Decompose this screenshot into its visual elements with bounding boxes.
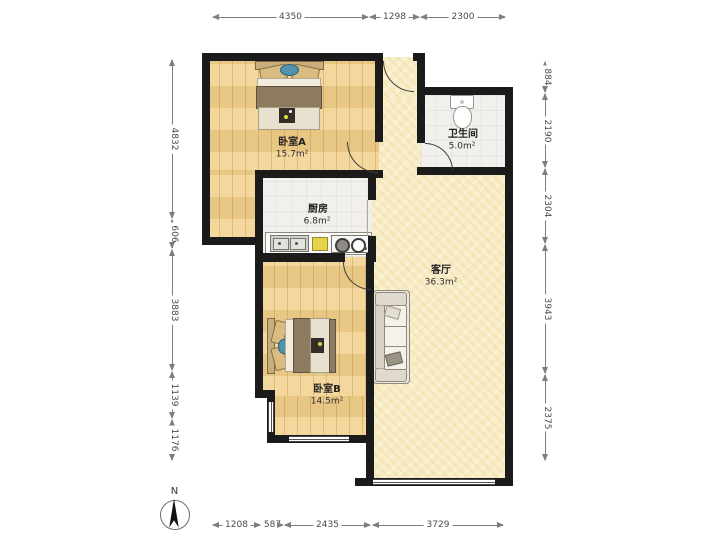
sink-basin [290, 238, 306, 250]
bed-b [267, 318, 335, 372]
room-area-bedroom-a: 15.7m² [276, 151, 308, 160]
dim-left-4: 1176 [172, 420, 173, 460]
kitchen-sink [270, 235, 309, 252]
toilet [450, 95, 473, 129]
wall [417, 87, 513, 95]
sofa-cushion [384, 326, 407, 347]
room-label-bathroom: 卫生间 [448, 130, 478, 140]
wall [375, 53, 383, 142]
kitchen-opening-edge [367, 200, 368, 236]
stove [331, 235, 370, 253]
north-label: N [158, 487, 191, 497]
room-area-bathroom: 5.0m² [449, 143, 476, 152]
dim-bottom-0: 1208 [213, 525, 260, 526]
room-label-bedroom-a: 卧室A [278, 138, 306, 148]
bed-blanket [256, 86, 322, 109]
wall [368, 170, 376, 200]
dim-left-1: 606 [172, 220, 173, 248]
window [289, 436, 349, 442]
dim-bottom-1: 587 [262, 525, 283, 526]
sink-drain [278, 242, 281, 245]
dim-right-3: 3943 [545, 245, 546, 373]
burner [335, 238, 350, 253]
bed-foot-rail [329, 319, 336, 373]
dim-top-2: 2300 [421, 17, 505, 18]
flush-button [460, 100, 464, 104]
dim-right-0: 884 [545, 62, 546, 92]
tray-dot [318, 342, 322, 346]
dim-left-0: 4832 [172, 60, 173, 218]
toilet-bowl [453, 106, 472, 129]
bed-a [255, 61, 322, 130]
room-label-kitchen: 厨房 [308, 205, 328, 215]
kitchen-counter [265, 232, 372, 255]
tray-dot [284, 115, 288, 119]
sofa-armrest [375, 368, 407, 382]
bed-cushion [280, 64, 299, 76]
dim-left-2: 3883 [172, 250, 173, 370]
sink-basin [273, 238, 289, 250]
room-label-bedroom-b: 卧室B [313, 385, 341, 395]
dim-right-1: 2190 [545, 94, 546, 167]
bed-tray [279, 108, 295, 123]
dim-top-1: 1298 [370, 17, 419, 18]
sofa-armrest [375, 292, 407, 306]
dim-right-2: 2304 [545, 169, 546, 243]
tray-dot [289, 110, 292, 113]
wall [255, 170, 263, 398]
room-area-bedroom-b: 14.5m² [311, 398, 343, 407]
dim-top-0: 4350 [213, 17, 368, 18]
room-area-kitchen: 6.8m² [304, 218, 331, 227]
stove-knob [364, 247, 367, 250]
wall [505, 87, 513, 486]
room-area-living-room: 36.3m² [425, 279, 457, 288]
wall [202, 237, 263, 245]
sink-drain [295, 242, 298, 245]
room-label-living-room: 客厅 [431, 266, 451, 276]
bed-tray [311, 338, 324, 353]
wall [202, 53, 210, 245]
window [373, 479, 495, 485]
cutting-board [312, 237, 328, 251]
wall [257, 170, 383, 178]
wall [417, 95, 425, 143]
sofa [373, 290, 410, 384]
dim-right-4: 2375 [545, 375, 546, 460]
dim-bottom-2: 2435 [285, 525, 370, 526]
burner [351, 238, 366, 253]
dim-bottom-3: 3729 [373, 525, 503, 526]
window [268, 402, 274, 432]
floor-plan: 卧室A 15.7m² 卫生间 5.0m² 厨房 6.8m² 客厅 36.3m² … [0, 0, 720, 540]
wall [255, 253, 345, 262]
north-compass: N [158, 487, 191, 534]
wall [202, 53, 383, 61]
dim-left-3: 1139 [172, 372, 173, 418]
